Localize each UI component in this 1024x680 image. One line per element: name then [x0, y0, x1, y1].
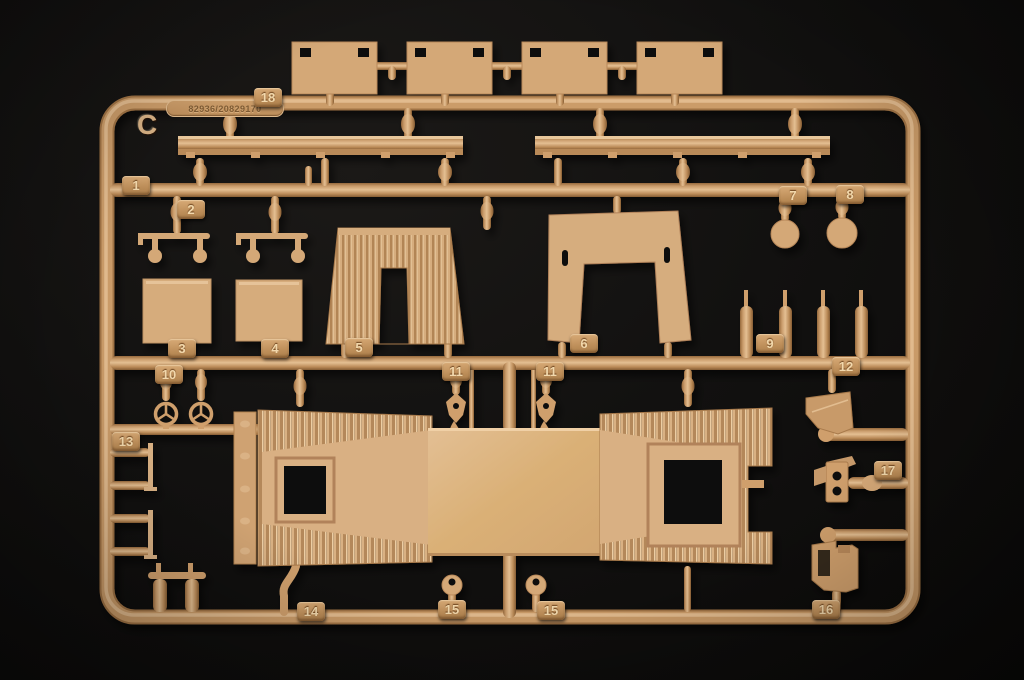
part-13-rods	[110, 443, 157, 559]
part-tag-6: 6	[570, 334, 598, 353]
part-tag-15b: 15	[537, 601, 565, 620]
part-tag-7: 7	[779, 186, 807, 205]
sprue-letter: C	[137, 109, 157, 141]
part-tag-14: 14	[297, 602, 325, 621]
deck-right-ramp	[600, 408, 772, 564]
part-tag-1: 1	[122, 176, 150, 195]
sprue-drawing	[0, 0, 1024, 680]
part-tag-12: 12	[832, 357, 860, 376]
part-6-arch-panel	[548, 211, 691, 343]
part-8-disc	[827, 218, 857, 248]
part-tag-8: 8	[836, 185, 864, 204]
part-3-panel	[143, 279, 211, 343]
deck-center-plate	[428, 428, 602, 556]
part-tag-16: 16	[812, 600, 840, 619]
part-tag-11a: 11	[442, 362, 470, 381]
part-5-ribbed-arch	[326, 228, 464, 344]
part-tag-3: 3	[168, 339, 196, 358]
part-tag-2: 2	[177, 200, 205, 219]
part-tag-10: 10	[155, 365, 183, 384]
deck-left-ramp	[234, 410, 432, 566]
part-tag-17: 17	[874, 461, 902, 480]
part-12-mudguard	[806, 392, 853, 434]
twin-post-part	[148, 563, 206, 612]
part-tag-15a: 15	[438, 600, 466, 619]
part-tag-13: 13	[112, 432, 140, 451]
part-2-benches	[138, 233, 308, 263]
part-4-panel	[236, 280, 302, 341]
sprue-photo: C 82936/20829170 18 1 2 3 4 5 6 7 8 9 10…	[0, 0, 1024, 680]
part-tag-5: 5	[345, 338, 373, 357]
part-tag-4: 4	[261, 339, 289, 358]
part-15-pegs	[442, 575, 546, 595]
part-16-clamp	[812, 541, 858, 592]
part-tag-9: 9	[756, 334, 784, 353]
part-1-girder-strips	[178, 136, 830, 158]
part-tag-18: 18	[254, 88, 282, 107]
part-tag-11b: 11	[536, 362, 564, 381]
part-7-disc	[771, 220, 799, 248]
